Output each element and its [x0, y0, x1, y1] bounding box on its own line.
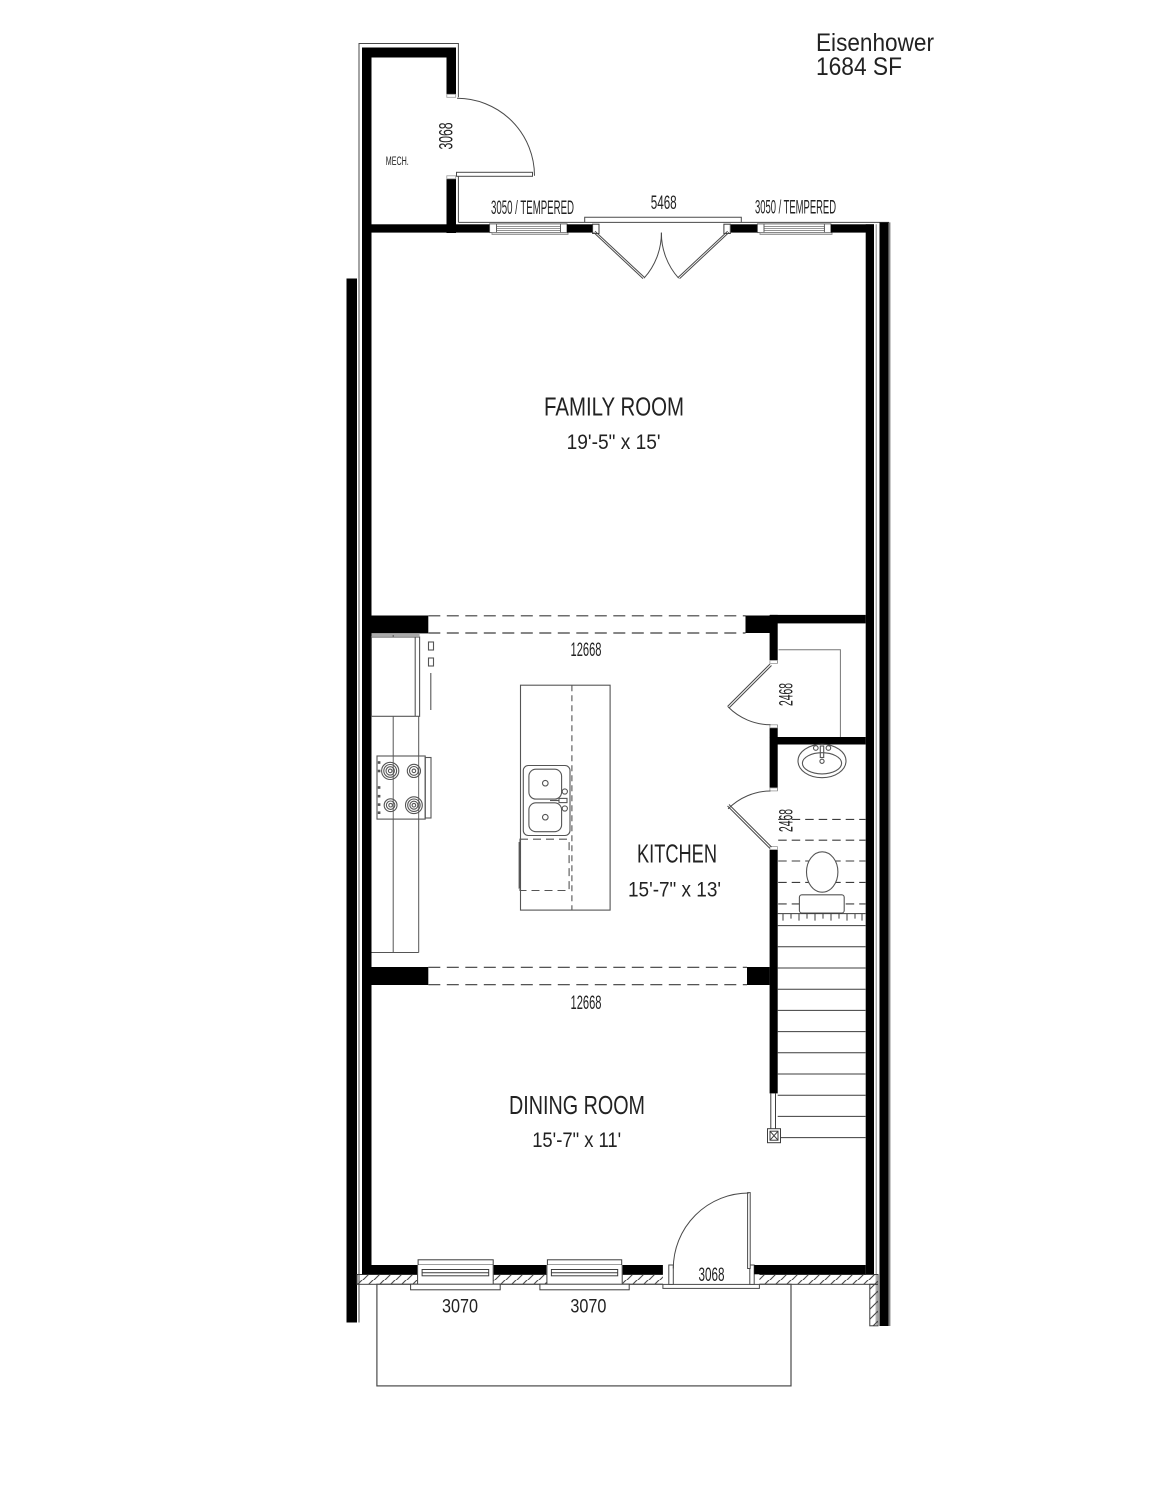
- svg-text:KITCHEN: KITCHEN: [637, 839, 717, 869]
- svg-text:12668: 12668: [571, 640, 602, 661]
- svg-text:15'-7" x 11': 15'-7" x 11': [532, 1129, 621, 1152]
- svg-text:2468: 2468: [777, 809, 798, 832]
- svg-text:1684 SF: 1684 SF: [816, 53, 902, 81]
- svg-text:MECH.: MECH.: [386, 156, 409, 168]
- svg-text:3070: 3070: [442, 1297, 478, 1318]
- svg-text:3068: 3068: [699, 1265, 725, 1286]
- svg-text:3068: 3068: [437, 123, 458, 150]
- svg-text:3070: 3070: [570, 1297, 606, 1318]
- svg-text:2468: 2468: [777, 683, 798, 706]
- svg-text:DINING ROOM: DINING ROOM: [509, 1090, 645, 1120]
- svg-text:19'-5" x 15': 19'-5" x 15': [567, 431, 661, 454]
- svg-text:15'-7" x 13': 15'-7" x 13': [628, 879, 721, 902]
- svg-text:5468: 5468: [651, 193, 677, 214]
- svg-text:3050 / TEMPERED: 3050 / TEMPERED: [755, 198, 836, 219]
- svg-text:3050 / TEMPERED: 3050 / TEMPERED: [491, 198, 574, 219]
- svg-text:FAMILY ROOM: FAMILY ROOM: [544, 392, 684, 422]
- svg-text:12668: 12668: [571, 993, 602, 1014]
